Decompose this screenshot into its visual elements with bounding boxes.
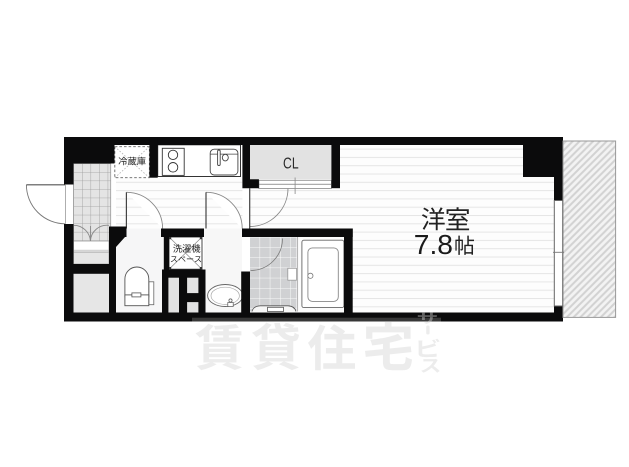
svg-text:CL: CL — [283, 155, 299, 172]
svg-text:7.8: 7.8 — [414, 228, 453, 260]
